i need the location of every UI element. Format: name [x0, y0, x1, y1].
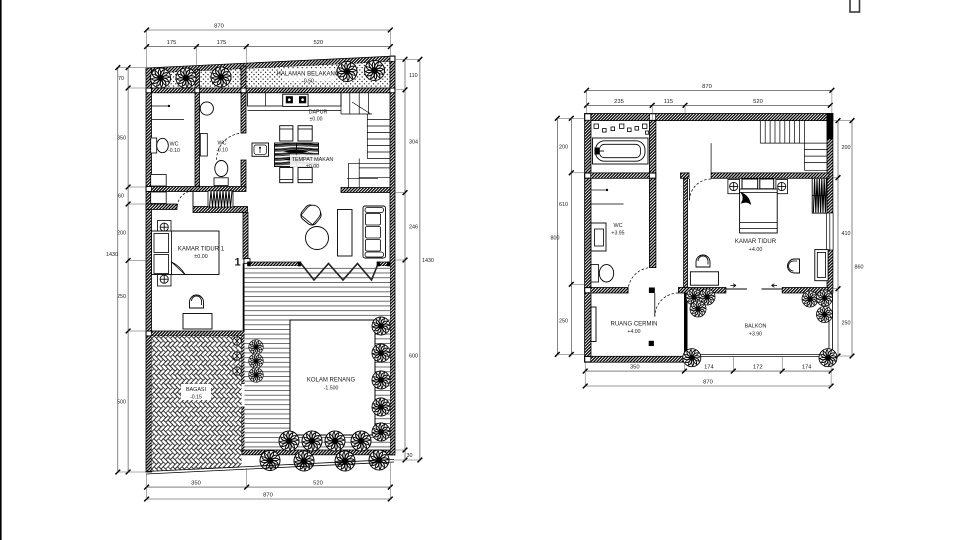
- svg-text:BALKON: BALKON: [745, 324, 767, 330]
- svg-text:115: 115: [664, 99, 673, 105]
- svg-text:KOLAM RENANG: KOLAM RENANG: [307, 378, 356, 384]
- svg-text:250: 250: [559, 319, 568, 325]
- svg-text:870: 870: [703, 380, 713, 386]
- svg-text:520: 520: [313, 40, 323, 46]
- svg-text:235: 235: [614, 99, 624, 105]
- svg-text:175: 175: [167, 40, 177, 46]
- svg-text:860: 860: [855, 265, 864, 271]
- svg-text:1430: 1430: [106, 252, 118, 258]
- svg-text:500: 500: [117, 400, 126, 406]
- svg-text:-1.500: -1.500: [324, 386, 339, 392]
- svg-text:246: 246: [409, 225, 418, 231]
- svg-text:+3.95: +3.95: [611, 231, 624, 237]
- svg-text:±0.00: ±0.00: [310, 117, 323, 123]
- svg-text:+3.90: +3.90: [749, 332, 762, 338]
- svg-text:174: 174: [802, 365, 812, 371]
- svg-text:350: 350: [191, 481, 201, 487]
- svg-text:±0.00: ±0.00: [194, 254, 207, 260]
- svg-text:+4.00: +4.00: [749, 247, 763, 253]
- svg-text:350: 350: [117, 136, 126, 142]
- svg-text:HALAMAN BELAKANG: HALAMAN BELAKANG: [276, 72, 339, 78]
- svg-text:610: 610: [559, 202, 568, 208]
- svg-text:350: 350: [630, 365, 640, 371]
- svg-text:+4.00: +4.00: [627, 329, 640, 335]
- svg-text:304: 304: [409, 140, 418, 146]
- svg-text:870: 870: [214, 24, 224, 30]
- svg-text:600: 600: [409, 354, 418, 360]
- svg-text:870: 870: [702, 84, 712, 90]
- svg-text:1430: 1430: [422, 258, 434, 264]
- svg-text:250: 250: [842, 321, 851, 327]
- svg-text:870: 870: [263, 493, 273, 499]
- svg-text:TEMPAT MAKAN: TEMPAT MAKAN: [292, 157, 334, 163]
- svg-text:250: 250: [117, 294, 126, 300]
- svg-text:-0.50: -0.50: [302, 79, 314, 85]
- svg-text:KAMAR TIDUR 1: KAMAR TIDUR 1: [178, 247, 225, 253]
- svg-text:BAGASI: BAGASI: [186, 387, 206, 393]
- svg-text:1: 1: [234, 257, 240, 269]
- svg-text:RUANG CERMIN: RUANG CERMIN: [610, 322, 657, 328]
- svg-text:-0.10: -0.10: [168, 148, 180, 154]
- svg-text:174: 174: [704, 365, 714, 371]
- svg-text:60: 60: [118, 194, 124, 200]
- svg-text:800: 800: [551, 236, 560, 242]
- svg-text:KAMAR TIDUR: KAMAR TIDUR: [735, 239, 777, 245]
- svg-text:70: 70: [118, 76, 124, 82]
- svg-text:200: 200: [117, 231, 126, 237]
- svg-text:520: 520: [313, 481, 323, 487]
- svg-text:410: 410: [842, 231, 851, 237]
- svg-text:WC: WC: [170, 142, 179, 148]
- svg-text:WC: WC: [614, 223, 623, 229]
- svg-text:200: 200: [842, 145, 851, 151]
- svg-text:WC: WC: [218, 141, 227, 147]
- svg-text:520: 520: [753, 99, 763, 105]
- svg-text:175: 175: [217, 40, 227, 46]
- svg-text:110: 110: [409, 73, 418, 79]
- svg-text:172: 172: [753, 365, 763, 371]
- svg-text:200: 200: [559, 145, 568, 151]
- svg-text:30: 30: [407, 453, 413, 459]
- svg-text:±0.00: ±0.00: [306, 164, 319, 170]
- svg-text:DAPUR: DAPUR: [309, 110, 328, 116]
- svg-text:-0.15: -0.15: [190, 395, 202, 401]
